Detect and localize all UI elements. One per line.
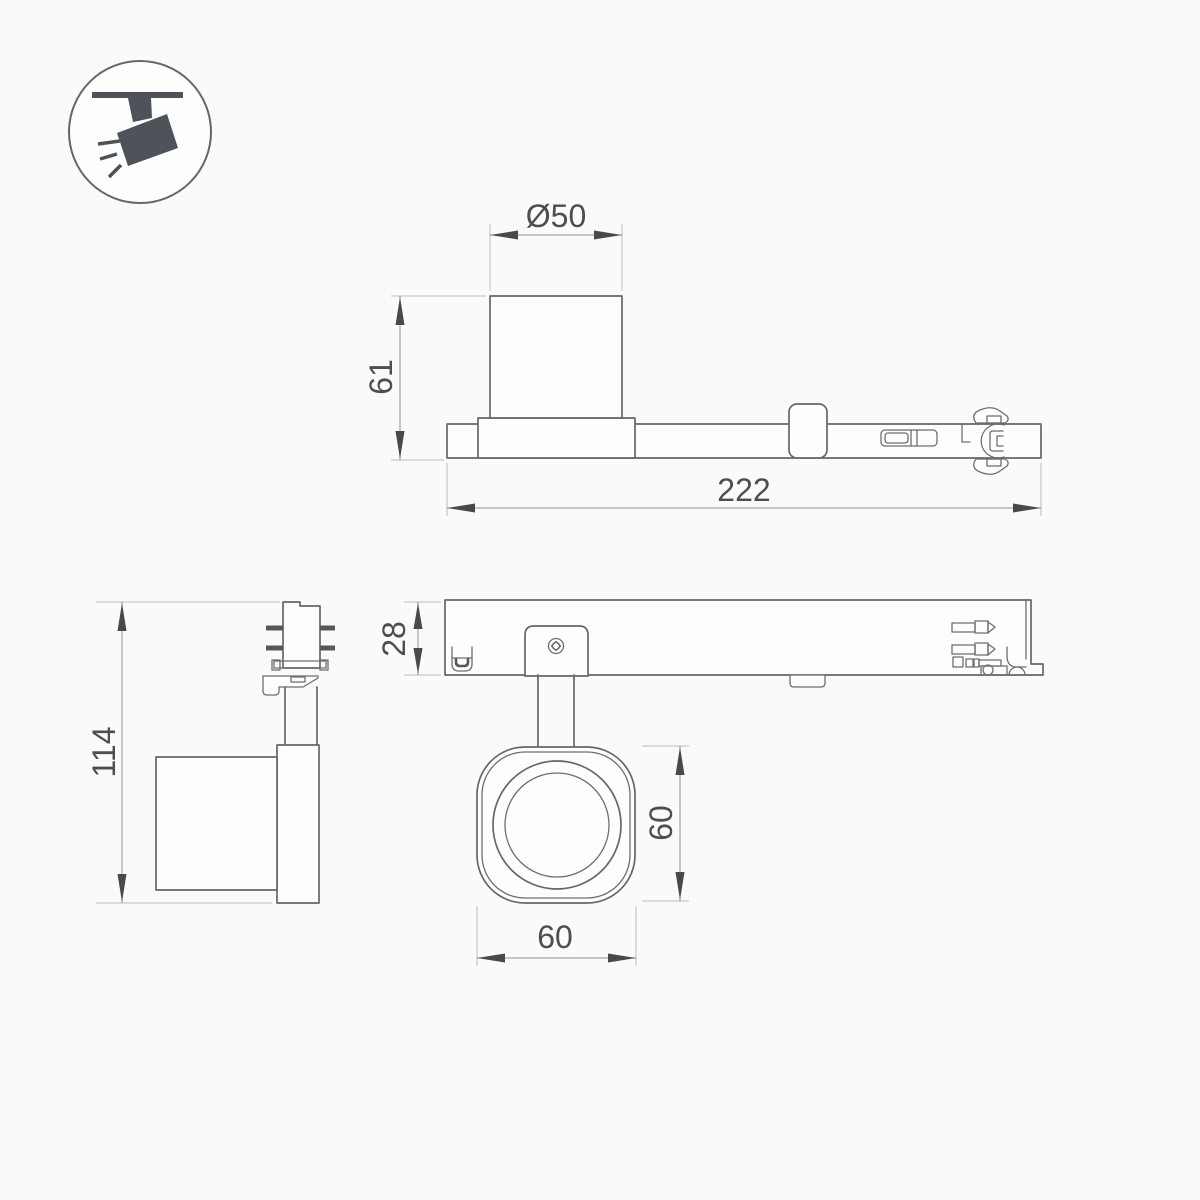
dim-length-222: 222 [447, 463, 1041, 516]
cylinder-head [490, 296, 622, 418]
dim-label-head-height: 60 [643, 805, 679, 841]
dim-head-width-60: 60 [477, 906, 636, 966]
head-front-face [477, 747, 635, 903]
dim-track-depth-28: 28 [376, 602, 441, 675]
front-view: 114 [86, 602, 335, 903]
dim-diameter-50: Ø50 [490, 198, 622, 291]
side-view: Ø50 61 222 [363, 198, 1041, 516]
dim-label-length: 222 [717, 472, 770, 508]
fixture-body [277, 745, 319, 903]
top-view: 28 60 60 [376, 600, 1043, 966]
front-view-geometry [156, 602, 335, 903]
pivot-bracket [525, 626, 588, 676]
dim-label-height: 61 [363, 359, 399, 395]
side-view-geometry [447, 296, 1041, 474]
head-side-face [156, 757, 277, 890]
drawing-canvas: Ø50 61 222 [0, 0, 1200, 1200]
dim-label-diameter: Ø50 [526, 198, 586, 234]
icon-ceiling-track [92, 92, 183, 98]
top-view-geometry [445, 600, 1043, 903]
technical-drawing-svg: Ø50 61 222 [0, 0, 1200, 1200]
track-spotlight-icon [69, 61, 211, 203]
bottom-protrusion [790, 675, 825, 687]
adapter-block [283, 602, 320, 668]
dim-label-track-depth: 28 [376, 621, 412, 657]
pivot-block [789, 404, 827, 458]
dim-head-height-60: 60 [642, 746, 689, 901]
dim-label-total-height: 114 [86, 726, 122, 777]
head-base-block [478, 418, 635, 458]
dim-label-head-width: 60 [537, 919, 573, 955]
